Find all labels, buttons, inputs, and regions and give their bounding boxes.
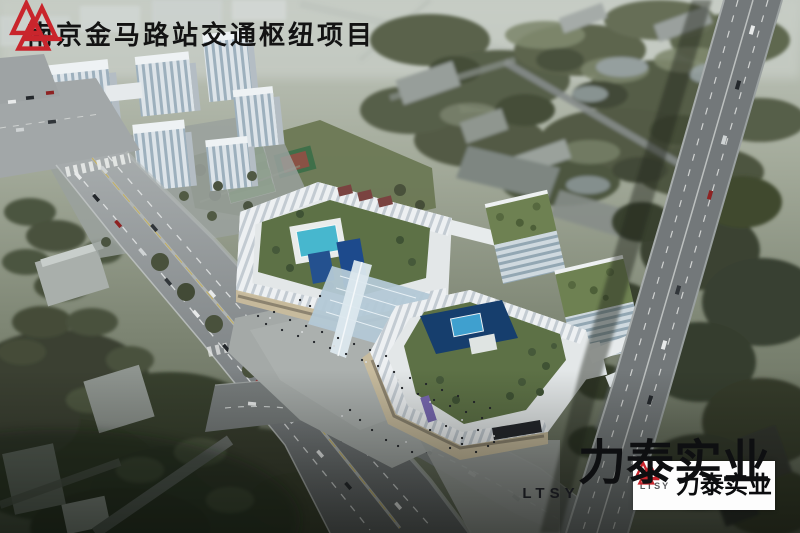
pond [596,57,648,77]
ltsy-abbr-large: LTSY [514,486,588,501]
project-title: 南京金马路站交通枢纽项目 [27,22,375,48]
ltsy-triangle-icon [0,0,70,52]
company-name-watermark: 力泰实业 [578,440,770,488]
screenshot-root: 南京金马路站交通枢纽项目 LTSY 力泰实业 LTSY 力泰实业 [0,0,800,533]
